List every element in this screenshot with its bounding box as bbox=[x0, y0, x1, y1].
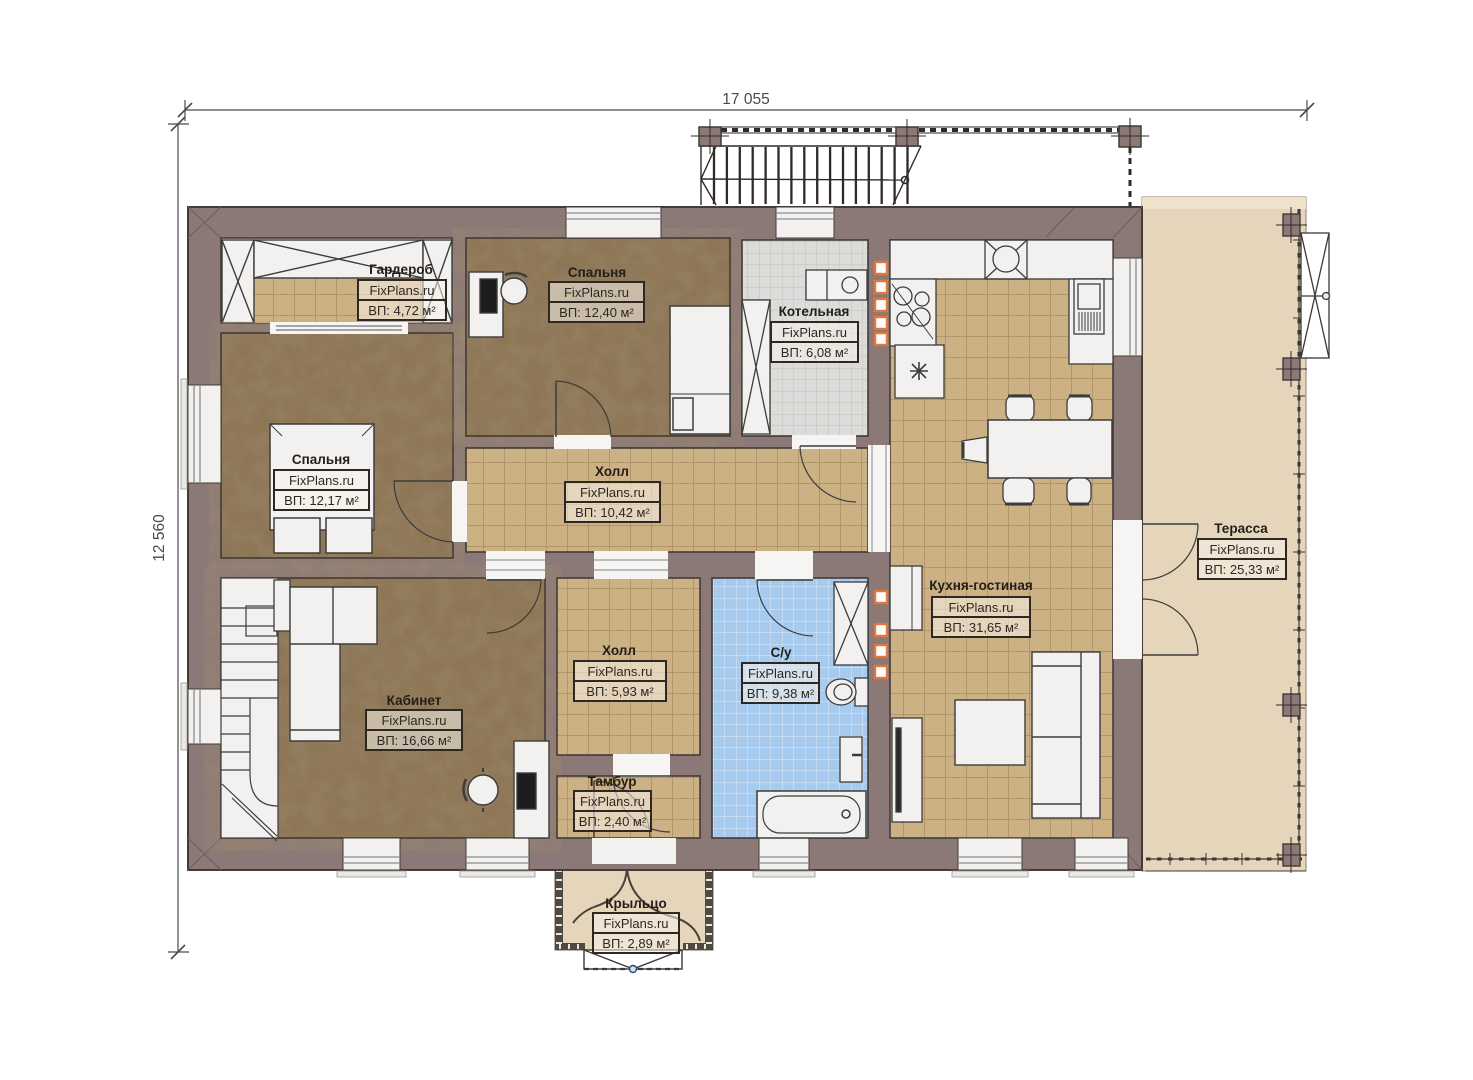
svg-text:FixPlans.ru: FixPlans.ru bbox=[369, 283, 434, 298]
svg-text:ВП: 31,65 м²: ВП: 31,65 м² bbox=[944, 620, 1019, 635]
svg-text:Спальня: Спальня bbox=[292, 452, 350, 467]
svg-text:Тамбур: Тамбур bbox=[588, 774, 637, 789]
svg-text:Крыльцо: Крыльцо bbox=[605, 896, 666, 911]
svg-text:Терасса: Терасса bbox=[1214, 521, 1268, 536]
svg-text:FixPlans.ru: FixPlans.ru bbox=[564, 285, 629, 300]
svg-text:ВП: 6,08 м²: ВП: 6,08 м² bbox=[781, 345, 849, 360]
svg-text:FixPlans.ru: FixPlans.ru bbox=[580, 794, 645, 809]
svg-text:FixPlans.ru: FixPlans.ru bbox=[948, 600, 1013, 615]
svg-text:FixPlans.ru: FixPlans.ru bbox=[580, 485, 645, 500]
svg-text:ВП: 25,33 м²: ВП: 25,33 м² bbox=[1205, 562, 1280, 577]
svg-text:ВП: 2,40 м²: ВП: 2,40 м² bbox=[579, 814, 647, 829]
svg-text:FixPlans.ru: FixPlans.ru bbox=[587, 664, 652, 679]
svg-text:17 055: 17 055 bbox=[722, 91, 769, 108]
svg-text:ВП: 9,38 м²: ВП: 9,38 м² bbox=[747, 686, 815, 701]
svg-text:Холл: Холл bbox=[595, 464, 629, 479]
svg-text:Кухня-гостиная: Кухня-гостиная bbox=[929, 578, 1032, 593]
svg-text:FixPlans.ru: FixPlans.ru bbox=[1209, 542, 1274, 557]
svg-text:FixPlans.ru: FixPlans.ru bbox=[603, 916, 668, 931]
svg-text:FixPlans.ru: FixPlans.ru bbox=[782, 325, 847, 340]
svg-text:FixPlans.ru: FixPlans.ru bbox=[748, 666, 813, 681]
svg-text:Холл: Холл bbox=[602, 643, 636, 658]
svg-text:ВП: 10,42 м²: ВП: 10,42 м² bbox=[575, 505, 650, 520]
svg-text:ВП: 12,40 м²: ВП: 12,40 м² bbox=[559, 305, 634, 320]
svg-text:ВП: 2,89 м²: ВП: 2,89 м² bbox=[602, 936, 670, 951]
svg-text:Спальня: Спальня bbox=[568, 265, 626, 280]
svg-text:ВП: 4,72 м²: ВП: 4,72 м² bbox=[368, 303, 436, 318]
svg-text:12 560: 12 560 bbox=[151, 514, 168, 562]
svg-text:ВП: 12,17 м²: ВП: 12,17 м² bbox=[284, 493, 359, 508]
svg-text:ВП: 5,93 м²: ВП: 5,93 м² bbox=[586, 684, 654, 699]
svg-text:С/у: С/у bbox=[770, 645, 792, 660]
svg-text:ВП: 16,66 м²: ВП: 16,66 м² bbox=[377, 733, 452, 748]
svg-text:FixPlans.ru: FixPlans.ru bbox=[289, 473, 354, 488]
svg-text:Кабинет: Кабинет bbox=[387, 693, 442, 708]
svg-text:Гардероб: Гардероб bbox=[369, 262, 433, 277]
svg-text:Котельная: Котельная bbox=[779, 304, 850, 319]
svg-text:FixPlans.ru: FixPlans.ru bbox=[381, 713, 446, 728]
